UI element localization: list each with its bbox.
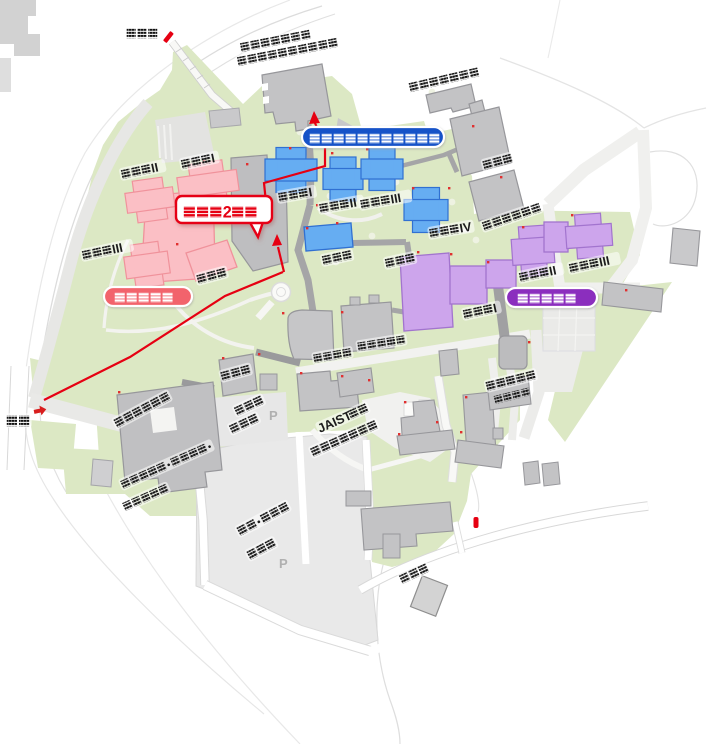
svg-text:P: P bbox=[269, 408, 278, 423]
svg-text:P: P bbox=[279, 556, 288, 571]
svg-text:2: 2 bbox=[223, 204, 232, 222]
